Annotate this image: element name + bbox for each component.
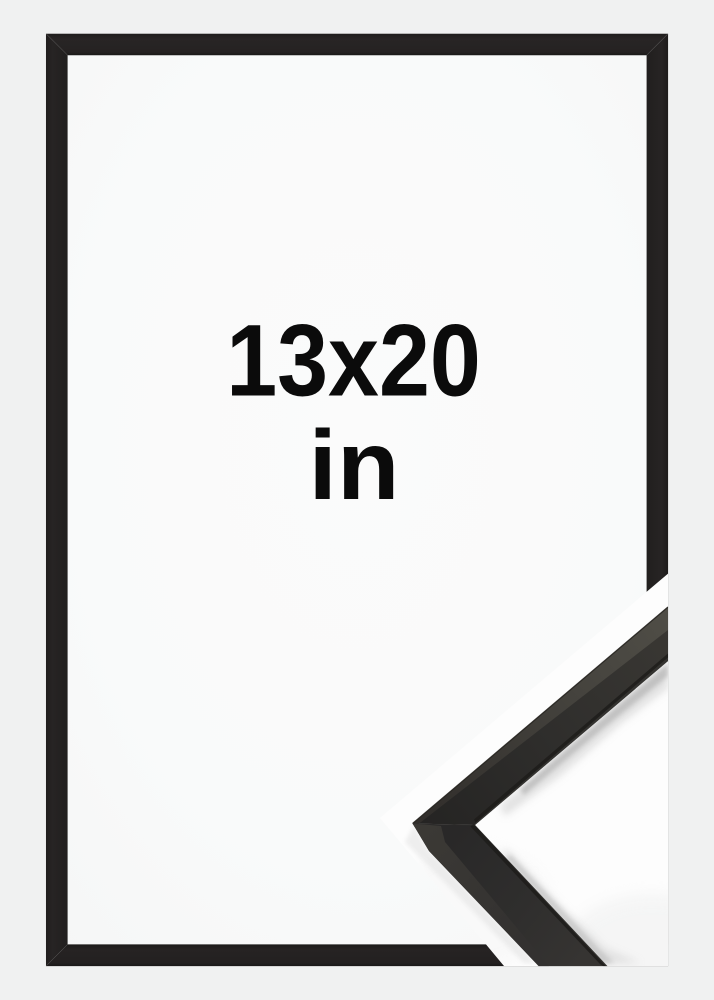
svg-text:in: in [309, 411, 400, 521]
svg-text:13x20: 13x20 [226, 303, 481, 418]
